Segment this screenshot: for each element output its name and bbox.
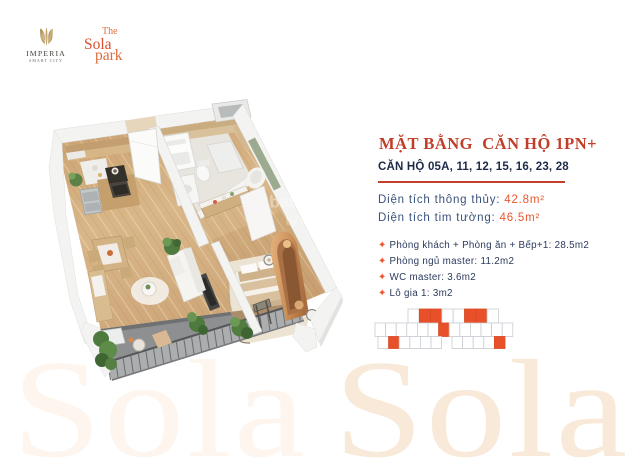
svg-text:by son.vn: by son.vn xyxy=(285,212,333,227)
svg-text:batdong: batdong xyxy=(269,188,337,212)
